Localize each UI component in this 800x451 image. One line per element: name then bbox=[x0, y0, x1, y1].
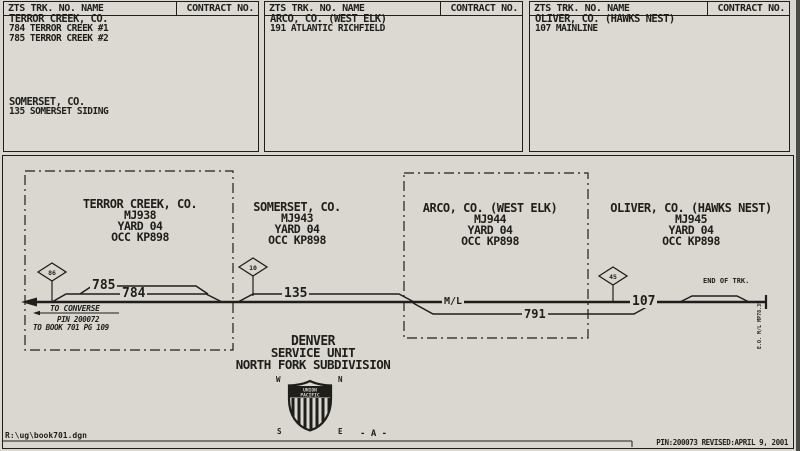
compass-south: S bbox=[277, 427, 282, 436]
track-number-784: 784 bbox=[120, 287, 147, 300]
track-number-785: 785 bbox=[90, 279, 117, 292]
track-group-arco: ARCO, CO. (WEST ELK) 191 ATLANTIC RICHFI… bbox=[270, 14, 518, 34]
source-filename: R:\ug\book701.dgn bbox=[5, 431, 87, 440]
scan-edge-artifact bbox=[796, 0, 800, 451]
compass-east: E bbox=[338, 427, 343, 436]
track-entry: 107 MAINLINE bbox=[535, 24, 785, 34]
track-number-135: 135 bbox=[282, 287, 309, 300]
to-converse-arrowhead-icon bbox=[33, 311, 40, 315]
subdivision-title-block: DENVER SERVICE UNIT NORTH FORK SUBDIVISI… bbox=[213, 336, 413, 370]
zts-track-chart-page: UNION PACIFIC 86 10 45 ZTS TRK. NO. NAME… bbox=[0, 0, 800, 451]
end-of-track-label: END OF TRK. bbox=[703, 277, 749, 285]
west-arrowhead-icon bbox=[21, 298, 37, 307]
to-converse-note: TO CONVERSE bbox=[50, 304, 100, 313]
milepost-diamond-value: 45 bbox=[609, 273, 617, 281]
track-group-oliver: OLIVER, CO. (HAWKS NEST) 107 MAINLINE bbox=[535, 14, 785, 34]
mainline-label: M/L bbox=[442, 297, 464, 307]
compass-west: W bbox=[276, 375, 281, 384]
contract-box-terror-creek: ZTS TRK. NO. NAME CONTRACT NO. TERROR CR… bbox=[3, 1, 259, 152]
station-occ: OCC KP898 bbox=[400, 236, 580, 247]
station-label-arco: ARCO, CO. (WEST ELK) MJ944 YARD 04 OCC K… bbox=[400, 203, 580, 247]
shield-text-union: UNION bbox=[303, 387, 317, 393]
contract-no-header-label: CONTRACT NO. bbox=[187, 3, 254, 14]
station-occ: OCC KP898 bbox=[596, 236, 786, 247]
track-group-somerset: SOMERSET, CO. 135 SOMERSET SIDING bbox=[9, 97, 254, 117]
milepost-diamond-value: 86 bbox=[48, 269, 56, 277]
track-number-107: 107 bbox=[630, 295, 657, 308]
station-label-oliver: OLIVER, CO. (HAWKS NEST) MJ945 YARD 04 O… bbox=[596, 203, 786, 247]
contract-no-header-label: CONTRACT NO. bbox=[451, 3, 518, 14]
track-number-791: 791 bbox=[522, 308, 548, 320]
shield-text-pacific: PACIFIC bbox=[300, 393, 320, 399]
page-marker: - A - bbox=[360, 429, 387, 439]
track-entry: 135 SOMERSET SIDING bbox=[9, 107, 254, 117]
station-label-somerset: SOMERSET, CO. MJ943 YARD 04 OCC KP898 bbox=[207, 202, 387, 246]
track-group-terror-creek: TERROR CREEK, CO. 784 TERROR CREEK #1 78… bbox=[9, 14, 254, 43]
book-reference-note: TO BOOK 701 PG 109 bbox=[33, 323, 109, 332]
end-of-mainline-note: E.O. M/L MP78.39 bbox=[757, 301, 763, 349]
milepost-diamond-value: 10 bbox=[249, 264, 257, 272]
pin-revision-note: PIN:200073 REVISED:APRIL 9, 2001 bbox=[628, 438, 788, 447]
compass-north: N bbox=[338, 375, 343, 384]
contract-box-oliver: ZTS TRK. NO. NAME CONTRACT NO. OLIVER, C… bbox=[529, 1, 790, 152]
contract-no-header-label: CONTRACT NO. bbox=[718, 3, 785, 14]
shield-stripes bbox=[293, 398, 329, 432]
station-occ: OCC KP898 bbox=[207, 235, 387, 246]
contract-box-arco: ZTS TRK. NO. NAME CONTRACT NO. ARCO, CO.… bbox=[264, 1, 523, 152]
union-pacific-shield-icon: UNION PACIFIC bbox=[289, 381, 331, 432]
track-entry: 191 ATLANTIC RICHFIELD bbox=[270, 24, 518, 34]
title-line-subdivision: NORTH FORK SUBDIVISION bbox=[213, 359, 413, 371]
track-entry: 785 TERROR CREEK #2 bbox=[9, 34, 254, 44]
